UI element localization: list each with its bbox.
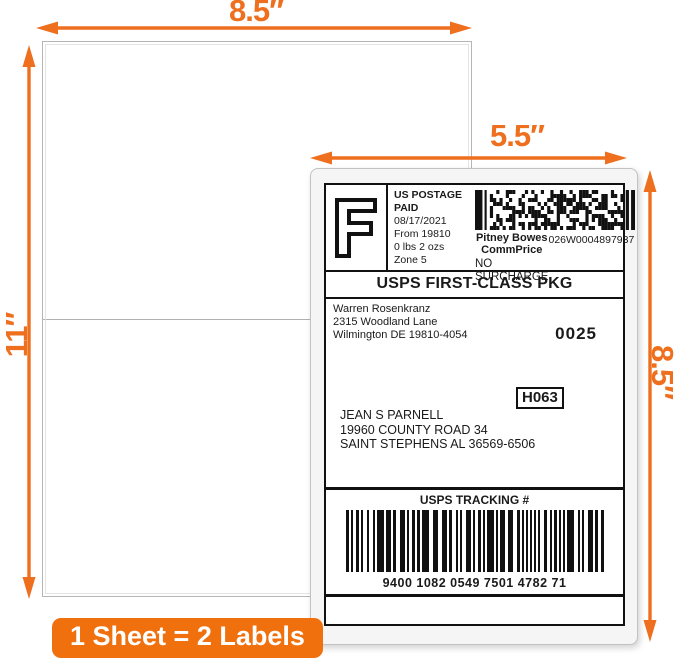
sender-address: Warren Rosenkranz 2315 Woodland Lane Wil… (333, 303, 468, 342)
batch-number: 0025 (555, 324, 597, 344)
postage-header-row: US POSTAGE PAID 08/17/2021 From 19810 0 … (326, 185, 623, 270)
label-footer-blank (326, 597, 623, 624)
recipient-street: 19960 COUNTY ROAD 34 (340, 423, 535, 438)
sheet-height-dimension: 11″ (0, 292, 33, 378)
recipient-city-state-zip: SAINT STEPHENS AL 36569-6506 (340, 437, 535, 452)
address-area: Warren Rosenkranz 2315 Woodland Lane Wil… (326, 299, 623, 487)
label-width-dimension: 5.5″ (447, 118, 587, 154)
sheet-count-badge: 1 Sheet = 2 Labels (52, 618, 323, 658)
postage-origin-zip: From 19810 (394, 228, 472, 241)
postage-date: 08/17/2021 (394, 215, 472, 228)
carrier-name-line1: Pitney Bowes (476, 232, 548, 244)
sheet-width-dimension: 8.5″ (196, 0, 316, 29)
sender-name: Warren Rosenkranz (333, 303, 468, 316)
recipient-name: JEAN S PARNELL (340, 408, 535, 423)
meter-block: Pitney Bowes CommPrice NO SURCHARGE 026W… (472, 185, 637, 270)
tracking-barcode-icon (345, 510, 605, 572)
tracking-section: USPS TRACKING # 9400 1082 0549 7501 4782… (326, 487, 623, 597)
label-height-dimension: 8.5″ (646, 329, 679, 415)
postage-info-block: US POSTAGE PAID 08/17/2021 From 19810 0 … (388, 185, 472, 270)
meter-serial-number: 026W0004897937 (548, 234, 635, 246)
sender-street: 2315 Woodland Lane (333, 316, 468, 329)
carrier-name-line2: CommPrice (481, 244, 542, 256)
postage-paid-line1: US POSTAGE (394, 189, 472, 202)
tracking-title: USPS TRACKING # (326, 493, 623, 507)
product-image-canvas: 8.5″ 11″ 5.5″ 8.5″ (0, 0, 679, 659)
tracking-number: 9400 1082 0549 7501 4782 71 (326, 576, 623, 590)
postage-2d-barcode-icon (475, 190, 635, 230)
postage-weight: 0 lbs 2 ozs (394, 241, 472, 254)
fim-letter-icon (326, 185, 388, 270)
sender-city-state-zip: Wilmington DE 19810-4054 (333, 329, 468, 342)
service-class-banner: USPS FIRST-CLASS PKG (326, 270, 623, 299)
postage-zone: Zone 5 (394, 254, 472, 267)
shipping-label: US POSTAGE PAID 08/17/2021 From 19810 0 … (324, 183, 625, 626)
recipient-address: JEAN S PARNELL 19960 COUNTY ROAD 34 SAIN… (340, 408, 535, 452)
shipping-label-card: US POSTAGE PAID 08/17/2021 From 19810 0 … (310, 168, 638, 645)
sort-code-box: H063 (516, 387, 564, 409)
postage-paid-line2: PAID (394, 202, 472, 215)
